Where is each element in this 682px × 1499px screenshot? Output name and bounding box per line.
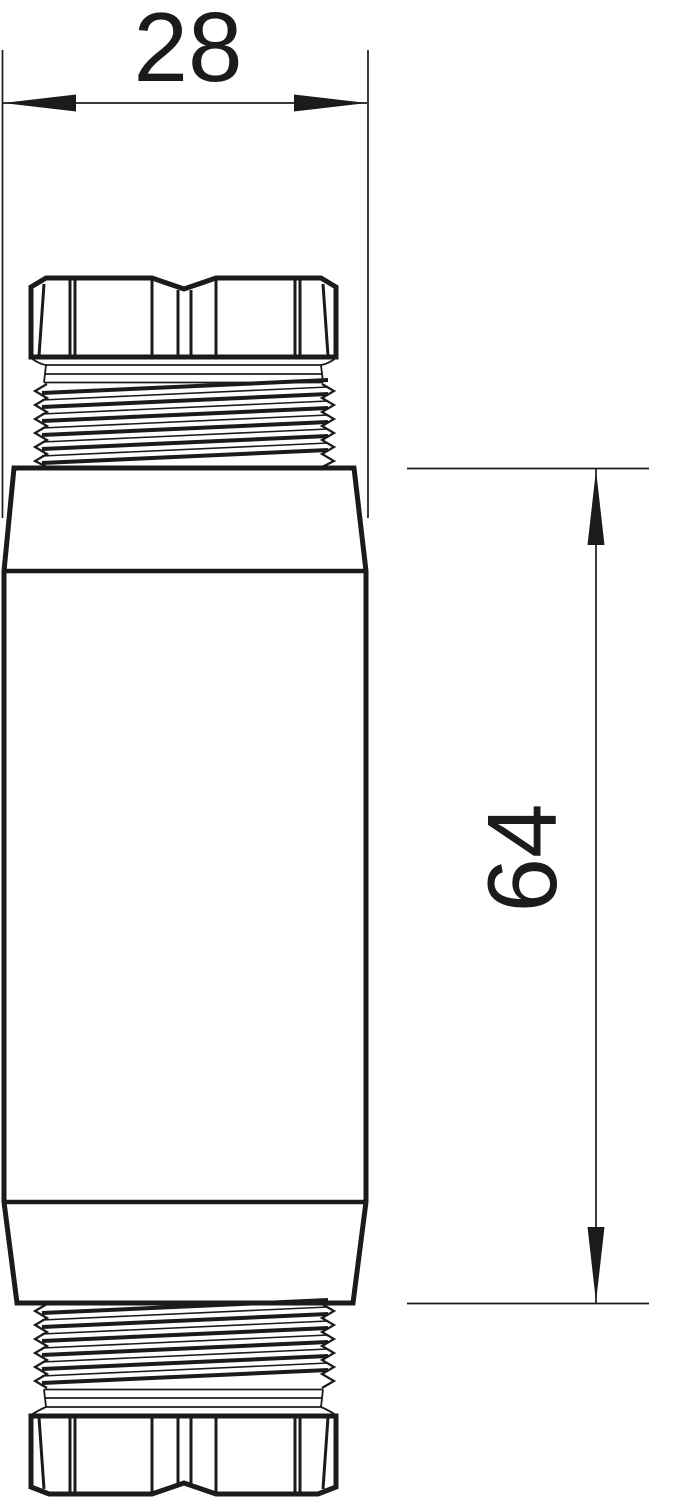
top-hex-nut-outline [31,278,336,357]
arrowhead-down-icon [588,1227,605,1302]
bottom-hex-nut [31,1416,336,1494]
dimension-height-label: 64 [467,803,577,912]
bottom-thread-section [35,1300,334,1388]
top-thread-left-profile [35,384,47,467]
dimension-width: 28 [3,0,369,518]
dimension-height: 64 [407,469,649,1304]
threaded-fitting-drawing: 28 64 [0,0,682,1499]
technical-drawing-canvas: 28 64 [0,0,682,1499]
arrowhead-right-icon [294,95,367,112]
top-hex-nut [31,278,336,357]
top-thread-right-profile [322,384,334,467]
arrowhead-up-icon [588,470,605,545]
bottom-hex-nut-outline [31,1416,336,1494]
arrowhead-left-icon [3,95,76,112]
top-collar [31,358,336,383]
main-body [4,468,366,1303]
main-body-outline [4,468,366,1303]
top-thread-section [35,380,334,467]
bottom-collar [31,1390,336,1416]
dimension-width-label: 28 [133,0,242,102]
bottom-thread-right-profile [322,1304,334,1388]
